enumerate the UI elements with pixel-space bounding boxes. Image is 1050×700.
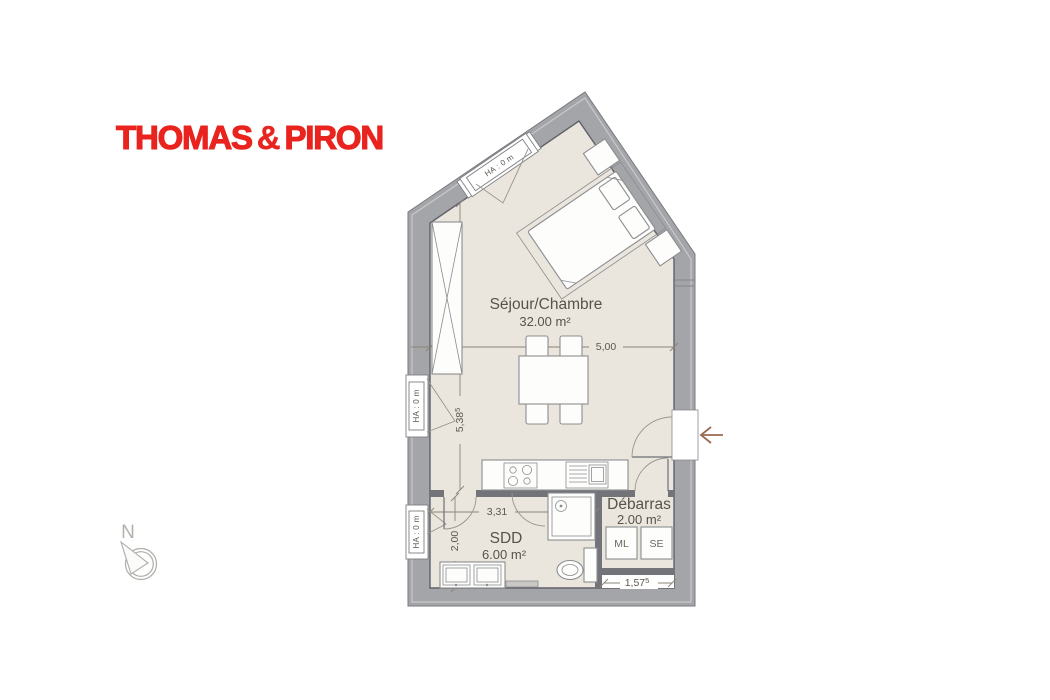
chair (560, 403, 582, 424)
page: THOMAS&PIRON (0, 0, 1050, 700)
sejour-area: 32.00 m² (519, 314, 571, 329)
sdd-name: SDD (490, 530, 523, 547)
wall-below-debarras (602, 568, 674, 575)
chair (526, 336, 548, 357)
dim-sdd-height: 2,00 (449, 531, 461, 552)
washer-label: ML (614, 538, 629, 550)
chair (560, 336, 582, 357)
entrance-arrow-icon (701, 427, 723, 443)
washing-machine: ML (606, 527, 637, 559)
brand-logo-ampersand: & (257, 119, 280, 156)
wardrobe (432, 222, 462, 374)
dryer-label: SE (649, 538, 663, 550)
vanity (440, 562, 505, 588)
sejour-name: Séjour/Chambre (490, 296, 603, 313)
dim-sdd-width: 3,31 (487, 506, 508, 518)
brand-logo-piron: PIRON (284, 119, 383, 156)
floor-plan: ML SE HA : 0 m HA : 0 m (0, 0, 1050, 700)
kitchen-counter (482, 460, 628, 490)
wall-sdd-top-left (430, 490, 444, 497)
dryer: SE (641, 527, 672, 559)
brand-logo: THOMAS&PIRON (116, 121, 383, 154)
compass-needle (121, 542, 148, 574)
shower (548, 493, 595, 540)
north-compass: N (121, 522, 157, 580)
dim-sejour-width: 5,00 (596, 341, 617, 353)
chair (526, 403, 548, 424)
debarras-name: Débarras (607, 496, 671, 513)
bath-mat (506, 581, 538, 587)
brand-logo-thomas: THOMAS (116, 119, 252, 156)
window-height-label: HA : 0 m (412, 515, 421, 548)
table (519, 356, 588, 404)
debarras-area: 2.00 m² (617, 512, 662, 527)
sdd-area: 6.00 m² (482, 547, 527, 562)
window-height-label: HA : 0 m (412, 389, 421, 422)
north-label: N (121, 522, 135, 543)
